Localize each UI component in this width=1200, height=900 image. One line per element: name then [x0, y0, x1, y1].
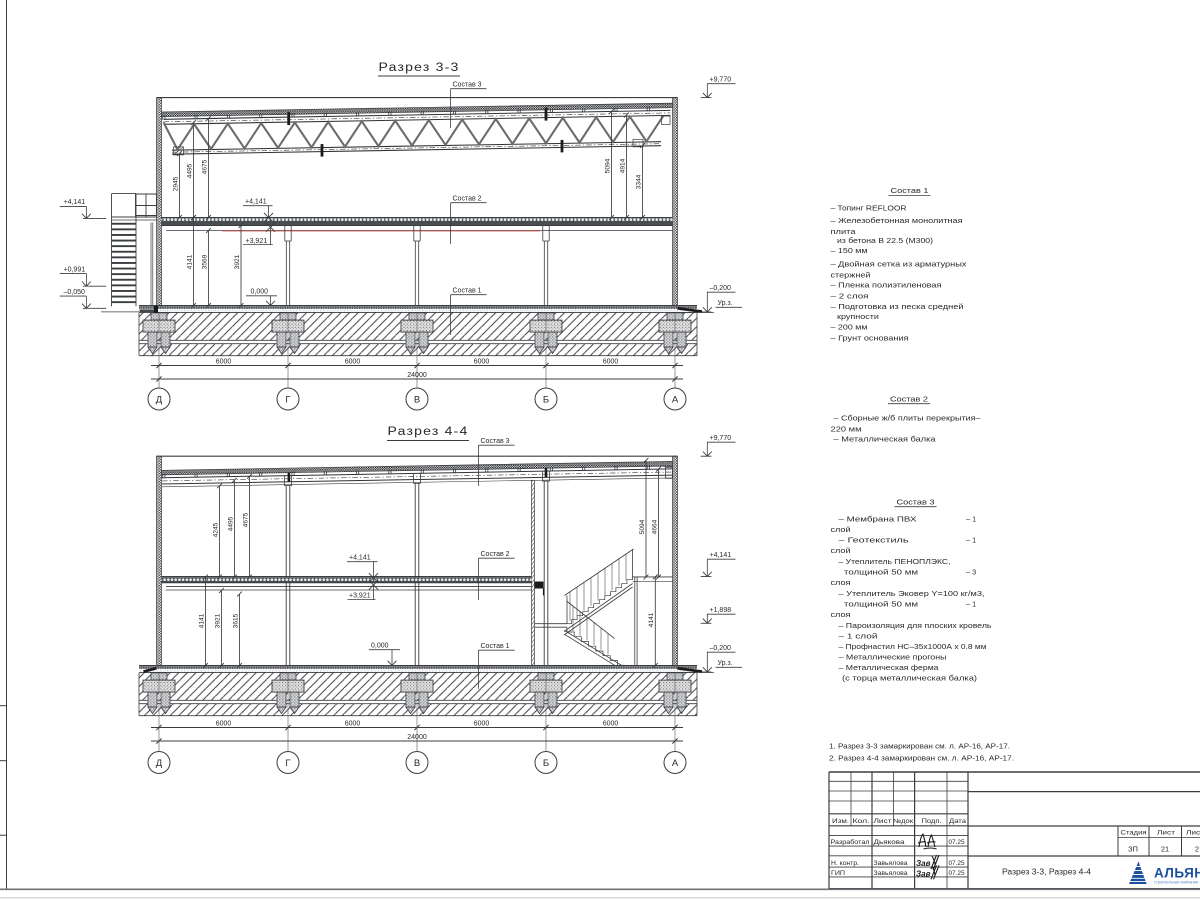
svg-text:строительная компания: строительная компания — [1154, 880, 1198, 885]
svg-text:А: А — [672, 758, 679, 769]
svg-text:2: 2 — [1195, 845, 1199, 854]
svg-text:Состав 1: Состав 1 — [481, 643, 510, 650]
svg-text:+3,921: +3,921 — [246, 238, 268, 245]
svg-text:Б: Б — [543, 394, 549, 405]
svg-text:– Сборные ж/б плиты перекрытия: – Сборные ж/б плиты перекрытия– — [834, 414, 982, 423]
svg-text:4675: 4675 — [242, 512, 249, 527]
svg-text:– 1: – 1 — [966, 536, 976, 545]
svg-text:Зав: Зав — [916, 859, 931, 868]
svg-text:6000: 6000 — [345, 359, 361, 366]
svg-text:– Топинг REFLOOR: – Топинг REFLOOR — [831, 204, 907, 213]
svg-text:Стадия: Стадия — [1121, 830, 1147, 837]
svg-text:Д: Д — [156, 758, 163, 769]
svg-text:Ур.з.: Ур.з. — [718, 660, 733, 667]
svg-text:220 мм: 220 мм — [831, 425, 862, 434]
svg-text:Н. контр.: Н. контр. — [831, 860, 859, 867]
svg-text:Состав 2: Состав 2 — [453, 196, 482, 203]
svg-text:– Пароизоляция для плоских кро: – Пароизоляция для плоских кровель — [839, 621, 992, 630]
svg-text:из бетона В 22.5 (М300): из бетона В 22.5 (М300) — [837, 236, 933, 245]
svg-text:6000: 6000 — [345, 721, 361, 728]
svg-text:толщиной 50 мм: толщиной 50 мм — [844, 600, 918, 609]
svg-text:Состав 2: Состав 2 — [890, 395, 928, 404]
svg-text:– Геотекстиль: – Геотекстиль — [839, 536, 909, 545]
svg-text:– 3: – 3 — [966, 568, 976, 577]
svg-text:– 1 слой: – 1 слой — [839, 631, 878, 640]
svg-text:Дата: Дата — [949, 818, 967, 825]
svg-text:Д: Д — [156, 394, 163, 405]
svg-text:5094: 5094 — [639, 519, 646, 534]
svg-text:6000: 6000 — [216, 359, 232, 366]
svg-text:толщиной 50 мм: толщиной 50 мм — [844, 568, 918, 577]
svg-text:+4,141: +4,141 — [245, 199, 267, 206]
svg-text:Разрез 3-3: Разрез 3-3 — [379, 62, 460, 74]
svg-text:– 1: – 1 — [966, 515, 976, 524]
svg-text:– Профнастил НС–35х1000А х 0.8: – Профнастил НС–35х1000А х 0.8 мм — [839, 642, 987, 651]
svg-text:0,000: 0,000 — [371, 643, 389, 650]
svg-text:– Пленка полиэтиленовая: – Пленка полиэтиленовая — [831, 281, 942, 290]
svg-text:0,000: 0,000 — [251, 289, 269, 296]
svg-text:6000: 6000 — [474, 359, 490, 366]
svg-text:АЛЬЯНС: АЛЬЯНС — [1154, 866, 1200, 881]
svg-text:+9,770: +9,770 — [710, 77, 732, 84]
svg-text:Завьялова: Завьялова — [874, 870, 909, 877]
svg-text:Изм.: Изм. — [832, 818, 849, 825]
svg-text:3344: 3344 — [635, 174, 642, 189]
svg-text:Лист: Лист — [1157, 830, 1175, 837]
svg-text:Разрез 3-3, Разрез 4-4: Разрез 3-3, Разрез 4-4 — [1002, 868, 1092, 877]
svg-text:слой: слой — [831, 546, 851, 555]
svg-text:слоя: слоя — [831, 578, 851, 587]
svg-text:3921: 3921 — [214, 613, 221, 628]
svg-text:ЗП: ЗП — [1128, 845, 1138, 854]
svg-text:6000: 6000 — [603, 721, 619, 728]
svg-text:Дьякова: Дьякова — [874, 839, 906, 846]
svg-text:+0,991: +0,991 — [64, 266, 86, 273]
svg-text:– 1: – 1 — [966, 600, 976, 609]
svg-text:5094: 5094 — [604, 158, 611, 173]
svg-text:4495: 4495 — [227, 516, 234, 531]
svg-text:– Двойная сетка из арматурных: – Двойная сетка из арматурных — [831, 260, 967, 269]
svg-text:слоя: слоя — [831, 610, 851, 619]
svg-text:+1,898: +1,898 — [710, 607, 732, 614]
svg-text:+9,770: +9,770 — [710, 435, 732, 442]
svg-text:07.25: 07.25 — [949, 839, 966, 846]
svg-text:– Мембрана ПВХ: – Мембрана ПВХ — [839, 515, 917, 524]
svg-text:стержней: стержней — [831, 271, 871, 280]
svg-text:4675: 4675 — [201, 159, 208, 174]
svg-text:07.25: 07.25 — [949, 860, 966, 867]
svg-text:– 150 мм: – 150 мм — [831, 246, 868, 255]
svg-text:4141: 4141 — [648, 612, 655, 627]
svg-text:6000: 6000 — [474, 721, 490, 728]
svg-text:07.25: 07.25 — [949, 870, 966, 877]
svg-text:–0,050: –0,050 — [64, 289, 86, 296]
svg-text:Лист: Лист — [1186, 830, 1200, 837]
svg-text:Состав 3: Состав 3 — [453, 82, 482, 89]
svg-text:24000: 24000 — [407, 372, 427, 379]
svg-text:–0,200: –0,200 — [710, 645, 732, 652]
svg-text:№док: №док — [893, 818, 913, 825]
svg-text:– Грунт основания: – Грунт основания — [831, 334, 909, 343]
svg-text:+4,141: +4,141 — [349, 555, 371, 562]
svg-text:+3,921: +3,921 — [349, 592, 371, 599]
svg-text:(с торца металлическая балка): (с торца металлическая балка) — [842, 674, 977, 683]
svg-text:– Металлическая ферма: – Металлическая ферма — [839, 663, 940, 672]
svg-text:4245: 4245 — [212, 522, 219, 537]
svg-text:4141: 4141 — [198, 613, 205, 628]
svg-text:Зав: Зав — [916, 869, 931, 878]
svg-text:Б: Б — [543, 758, 549, 769]
svg-text:+4,141: +4,141 — [64, 199, 86, 206]
svg-text:4914: 4914 — [619, 158, 626, 173]
svg-text:ГИП: ГИП — [831, 870, 845, 877]
svg-text:+4,141: +4,141 — [710, 552, 732, 559]
svg-text:6000: 6000 — [216, 721, 232, 728]
svg-text:– 2 слоя: – 2 слоя — [831, 292, 869, 301]
svg-text:Состав 1: Состав 1 — [891, 186, 929, 195]
svg-text:Состав 3: Состав 3 — [481, 438, 510, 445]
svg-text:3615: 3615 — [232, 613, 239, 628]
svg-text:А: А — [672, 394, 679, 405]
svg-text:Лист: Лист — [874, 818, 892, 825]
svg-text:– Утеплитель Эковер Y=100 кг/м: – Утеплитель Эковер Y=100 кг/м3, — [839, 589, 985, 598]
svg-text:– Металлические прогоны: – Металлические прогоны — [839, 652, 947, 661]
svg-text:Состав 1: Состав 1 — [453, 288, 482, 295]
svg-text:В: В — [414, 394, 420, 405]
svg-text:– 200 мм: – 200 мм — [831, 323, 868, 332]
svg-text:21: 21 — [1161, 845, 1169, 854]
svg-text:6000: 6000 — [603, 359, 619, 366]
svg-text:– Подготовка из песка средней: – Подготовка из песка средней — [831, 302, 964, 311]
svg-text:4664: 4664 — [651, 519, 658, 534]
svg-text:Г: Г — [285, 758, 290, 769]
svg-text:4495: 4495 — [186, 163, 193, 178]
svg-text:Ур.з.: Ур.з. — [718, 300, 733, 307]
svg-text:Состав 2: Состав 2 — [481, 551, 510, 558]
svg-text:Подп.: Подп. — [922, 818, 942, 825]
svg-text:Состав 3: Состав 3 — [897, 498, 935, 507]
svg-text:2. Разрез 4-4 замаркирован см.: 2. Разрез 4-4 замаркирован см. л. АР-16,… — [829, 754, 1014, 763]
svg-text:24000: 24000 — [407, 734, 427, 741]
svg-text:4141: 4141 — [186, 254, 193, 269]
svg-text:–0,200: –0,200 — [710, 285, 732, 292]
svg-text:Завьялова: Завьялова — [874, 860, 909, 867]
svg-text:– Железобетонная монолитная: – Железобетонная монолитная — [831, 216, 963, 225]
svg-text:плита: плита — [831, 227, 857, 236]
svg-text:Кол.: Кол. — [853, 818, 870, 825]
svg-text:2945: 2945 — [172, 176, 179, 191]
svg-text:В: В — [414, 758, 420, 769]
svg-text:крупности: крупности — [837, 312, 879, 321]
svg-text:1. Разрез 3-3 замаркирован см.: 1. Разрез 3-3 замаркирован см. л. АР-16,… — [829, 742, 1010, 751]
svg-text:– Металлическая балка: – Металлическая балка — [834, 435, 937, 444]
svg-text:Г: Г — [285, 394, 290, 405]
svg-text:3569: 3569 — [201, 254, 208, 269]
svg-text:– Утеплитель ПЕНОПЛЭКС,: – Утеплитель ПЕНОПЛЭКС, — [839, 557, 951, 566]
svg-text:3921: 3921 — [234, 254, 241, 269]
svg-text:Разработал: Разработал — [831, 839, 870, 846]
svg-text:Разрез 4-4: Разрез 4-4 — [388, 426, 469, 438]
svg-text:слой: слой — [831, 525, 851, 534]
